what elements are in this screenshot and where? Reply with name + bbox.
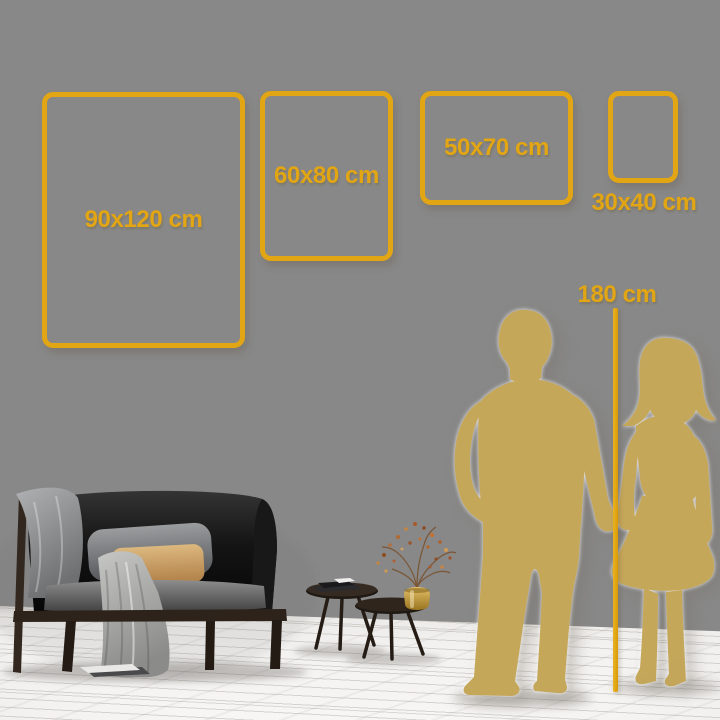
woman-leg-left bbox=[635, 588, 658, 684]
sofa-leg-center bbox=[205, 621, 215, 670]
gold-vase bbox=[404, 587, 430, 610]
woman-torso bbox=[636, 415, 700, 500]
size-label-90x120: 90x120 cm bbox=[85, 206, 203, 234]
sofa-illustration bbox=[0, 480, 320, 720]
size-label-60x80: 60x80 cm bbox=[274, 162, 379, 190]
sofa-leg-right bbox=[270, 620, 282, 669]
man-legs bbox=[464, 521, 581, 696]
size-frame-90x120: 90x120 cm bbox=[42, 92, 245, 348]
size-frame-30x40 bbox=[608, 91, 678, 183]
sofa-wood-rail bbox=[13, 609, 287, 622]
size-label-30x40-wrap: 30x40 cm bbox=[586, 189, 702, 217]
man-torso bbox=[478, 379, 587, 525]
height-reference-label: 180 cm bbox=[578, 281, 657, 308]
woman-head-hair bbox=[622, 338, 716, 426]
height-reference-label-wrap: 180 cm bbox=[572, 281, 662, 309]
man-head bbox=[499, 310, 552, 383]
woman-leg-right bbox=[665, 590, 686, 686]
size-frame-60x80: 60x80 cm bbox=[260, 91, 393, 261]
height-measure-line bbox=[613, 308, 618, 692]
size-frame-50x70: 50x70 cm bbox=[420, 91, 573, 205]
size-guide-scene: 90x120 cm 60x80 cm 50x70 cm 30x40 cm bbox=[0, 0, 720, 720]
size-label-30x40: 30x40 cm bbox=[592, 189, 697, 216]
size-label-50x70: 50x70 cm bbox=[444, 134, 549, 162]
